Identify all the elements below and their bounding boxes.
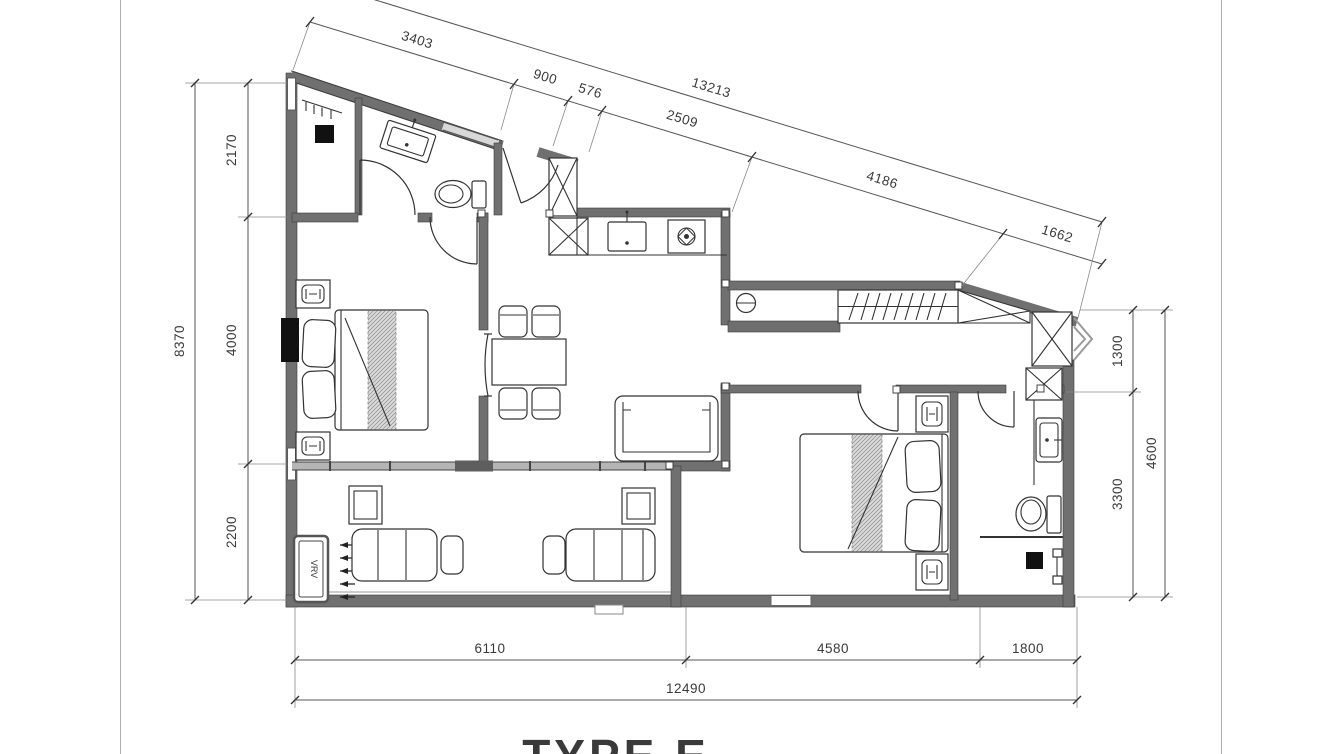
dim-right-seg-1: 3300: [1110, 478, 1125, 510]
ensuite-door: [978, 391, 1014, 427]
ensuite-bathroom: [1016, 400, 1062, 584]
living-area: [615, 396, 718, 461]
dim-left-seg-1: 4000: [224, 324, 239, 356]
closet-bath-divider: [355, 98, 362, 215]
dim-bottom-seg-2: 1800: [1012, 641, 1044, 656]
master-blanket: [852, 435, 882, 552]
floorplan-canvas: VRV: [0, 0, 1342, 754]
right-wall: [1063, 360, 1074, 607]
bathroom-door: [360, 160, 415, 215]
dim-left-seg-0: 2170: [224, 134, 239, 166]
shower-area: [1026, 549, 1062, 584]
master-bedroom-door: [858, 391, 898, 431]
vrv-unit: VRV: [294, 536, 328, 602]
side-table-left: [441, 536, 463, 574]
ensuite-sink: [1036, 418, 1062, 462]
window-chevron-outer: [1074, 318, 1092, 360]
side-table-right: [543, 536, 565, 574]
ac-louvre: [838, 290, 958, 323]
balcony-small-table-right: [622, 488, 655, 524]
plan-type-title: TYPE E: [522, 730, 710, 754]
kitchen-back-wall: [577, 208, 730, 217]
bath-entry-wall: [494, 143, 502, 215]
dim-left: 2170 4000 2200 8370: [172, 79, 287, 604]
dim-bottom-seg-0: 6110: [474, 641, 505, 656]
lounge-chair-left: [352, 529, 437, 581]
balcony-small-table-left: [349, 486, 382, 524]
bed-master: [800, 434, 948, 552]
dim-top-seg-2: 576: [577, 80, 604, 101]
dining-table: [492, 339, 566, 385]
balcony-door: [455, 461, 493, 472]
bed-bedroom2: [302, 310, 428, 430]
nightstand-master-bottom: [916, 554, 948, 590]
dim-top-seg-4: 4186: [865, 168, 900, 192]
structural-column: [281, 318, 299, 362]
window-chevron-inner: [1074, 327, 1085, 351]
dim-right-total: 4600: [1144, 437, 1159, 469]
dim-left-total: 8370: [172, 325, 187, 357]
living-side-wall: [721, 383, 730, 471]
nightstand-master-top: [916, 396, 948, 432]
dining-area: [492, 306, 566, 419]
bedroom2-wall-upper: [479, 213, 488, 330]
dim-right-seg-0: 1300: [1110, 335, 1125, 367]
dim-top-seg-5: 1662: [1040, 222, 1075, 246]
floorplan-page: VRV: [0, 0, 1342, 754]
bedroom2-sliding-door: [484, 334, 492, 396]
bedroom2-door: [430, 217, 477, 264]
vrv-label: VRV: [309, 560, 319, 578]
kitchen-stove: [668, 220, 705, 253]
closet: [302, 100, 342, 143]
bed2-pillow-bottom: [302, 370, 336, 419]
bottom-wall-notch: [595, 605, 623, 614]
sofa: [615, 396, 718, 461]
master-pillow-top: [905, 440, 942, 493]
floor-drain: [736, 294, 756, 313]
master-ensuite-wall: [950, 392, 958, 600]
nightstand-bed2-bottom: [296, 432, 330, 460]
console-cabinet: [728, 321, 840, 332]
kitchen-side-wall: [721, 213, 730, 325]
ensuite-toilet: [1016, 496, 1061, 533]
master-left-wall: [671, 466, 681, 607]
bedroom2: [296, 280, 428, 460]
dim-top-seg-3: 2509: [665, 107, 700, 131]
dim-bottom: 6110 4580 1800 12490: [291, 607, 1081, 708]
master-bedroom: [800, 396, 948, 590]
corridor: [736, 290, 958, 323]
corridor-top-wall: [728, 281, 960, 290]
shower-drain: [1026, 552, 1043, 569]
nightstand-bed2-top: [296, 280, 330, 308]
dim-top-seg-1: 900: [532, 66, 559, 87]
bathroom-toilet: [435, 181, 486, 209]
bed2-pillow-top: [302, 319, 336, 368]
dim-top-total: 13213: [690, 75, 733, 101]
bed2-blanket: [368, 311, 396, 430]
bottom-wall-vent: [771, 596, 811, 606]
dim-top-seg-0: 3403: [400, 28, 435, 52]
dim-left-seg-2: 2200: [224, 516, 239, 548]
dim-bottom-seg-1: 4580: [817, 641, 849, 656]
balcony: VRV: [294, 486, 655, 602]
bedroom2-wall-lower: [479, 396, 488, 467]
lounge-chair-right: [566, 529, 655, 581]
water-heater: [315, 125, 334, 143]
master-pillow-bottom: [905, 499, 942, 552]
dim-bottom-total: 12490: [666, 681, 706, 696]
left-wall-window-top: [288, 78, 296, 110]
